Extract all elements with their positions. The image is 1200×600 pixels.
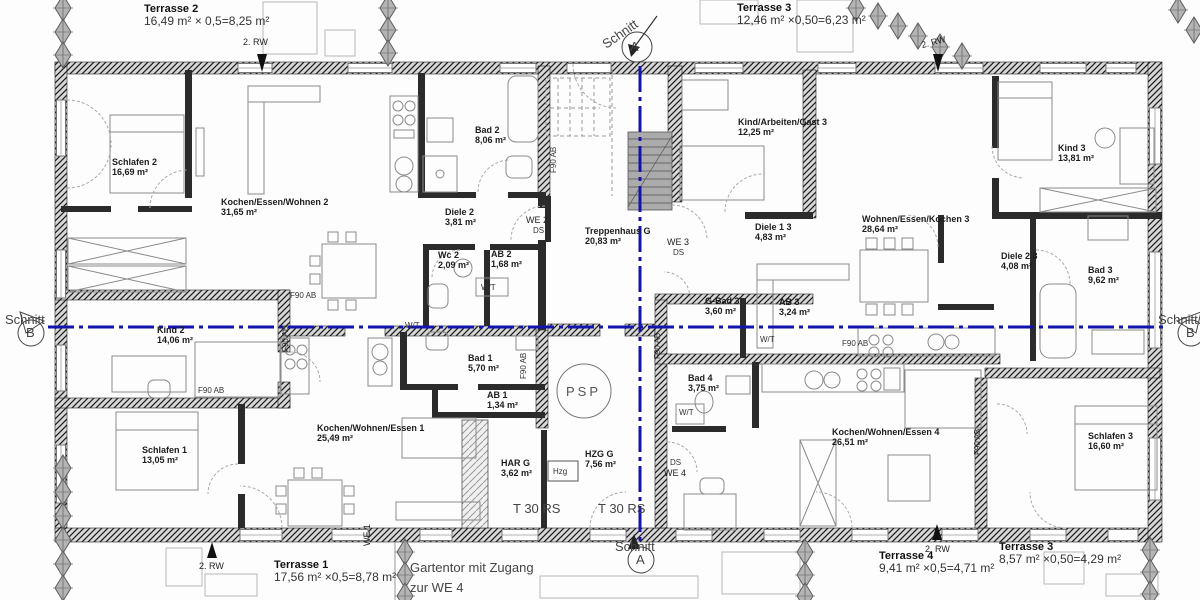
we2-label: WE 2	[526, 215, 548, 225]
terrace-label-1: Terrasse 117,56 m² ×0,5=8,78 m²	[274, 560, 396, 584]
room-label-har-g: HAR G3,62 m²	[501, 458, 532, 478]
room-label-kochen-essen-wohnen-2: Kochen/Essen/Wohnen 231,65 m²	[221, 197, 328, 217]
room-label-bad-2: Bad 28,06 m²	[475, 125, 506, 145]
we4-ds-label: DS	[670, 458, 681, 467]
we4-label: WE 4	[664, 468, 686, 478]
rw-marker-bottom-left: 2. RW	[199, 561, 224, 571]
rw-marker-bottom-right: 2. RW	[925, 544, 950, 554]
rw-marker-top-left: 2. RW	[243, 37, 268, 47]
f90-label-h: F90 AB	[842, 339, 868, 348]
f90-label-j: F90 AB	[973, 429, 982, 455]
f90-label-b: F90 AB	[281, 326, 290, 352]
floor-plan-page: Schlafen 216,69 m² Kochen/Essen/Wohnen 2…	[0, 0, 1200, 600]
wt-label-ab1: W/T	[405, 321, 420, 330]
room-label-schlafen-3: Schlafen 316,60 m²	[1088, 431, 1133, 451]
room-label-bad-4: Bad 43,75 m²	[688, 373, 719, 393]
room-label-hzg-g: HZG G7,56 m²	[585, 449, 616, 469]
t30-label-left: T 30 RS	[513, 502, 560, 516]
room-label-kochen-wohnen-essen-4: Kochen/Wohnen/Essen 426,51 m²	[832, 427, 939, 447]
room-label-diele-2-3: Diele 2 34,08 m²	[1001, 251, 1038, 271]
room-label-treppenhaus-g: Treppenhaus G20,83 m²	[585, 226, 651, 246]
terrace-label-3-top: Terrasse 312,46 m² ×0,50=6,23 m²	[737, 3, 866, 27]
terrace-label-4: Terrasse 49,41 m² ×0,5=4,71 m²	[879, 551, 994, 575]
room-label-ab-1: AB 11,34 m²	[487, 390, 518, 410]
gate-note-line1: Gartentor mit Zugang	[410, 561, 534, 575]
room-label-diele-1-3: Diele 1 34,83 m²	[755, 222, 792, 242]
wt-label-ab2: W/T	[481, 283, 496, 292]
terrace-label-3-bottom: Terrasse 38,57 m² ×0,50=4,29 m²	[999, 542, 1121, 566]
schnitt-a-bottom-label: Schnitt	[615, 540, 655, 554]
terrace-label-2: Terrasse 216,49 m² × 0,5=8,25 m²	[144, 4, 269, 28]
room-label-schlafen-1: Schlafen 113,05 m²	[142, 445, 187, 465]
schnitt-a-bottom-letter: A	[636, 553, 645, 567]
f90-label-f: F90 AB	[549, 147, 558, 173]
room-label-kind-2: Kind 214,06 m²	[157, 325, 193, 345]
f90-label-c: F90 AB	[198, 386, 224, 395]
schnitt-a-top-letter: A	[630, 40, 639, 54]
we3-label: WE 3	[667, 237, 689, 247]
room-label-kind-3: Kind 313,81 m²	[1058, 143, 1094, 163]
f90-label-g: F90 AB	[653, 333, 662, 359]
room-label-bad-3: Bad 39,62 m²	[1088, 265, 1119, 285]
schnitt-b-left-letter: B	[26, 326, 35, 340]
f90-label-e: F90 AB	[519, 353, 528, 379]
room-label-diele-2: Diele 23,81 m²	[445, 207, 476, 227]
room-label-wc-2: Wc 22,09 m²	[438, 250, 469, 270]
gate-note-line2: zur WE 4	[410, 581, 463, 595]
wt-label-ab3: W/T	[760, 335, 775, 344]
we2-ds-label: DS	[533, 226, 544, 235]
room-label-ab-3: AB 33,24 m²	[779, 297, 810, 317]
schnitt-b-left-label: Schnitt	[5, 313, 45, 327]
we3-ds-label: DS	[673, 248, 684, 257]
psp-label: PSP	[566, 384, 601, 399]
room-label-bad-1: Bad 15,70 m²	[468, 353, 499, 373]
f90-label-a: F90 AB	[290, 291, 316, 300]
room-label-wohnen-essen-kochen-3: Wohnen/Essen/Kochen 328,64 m²	[862, 214, 969, 234]
room-label-ab-2: AB 21,68 m²	[491, 249, 522, 269]
room-label-kochen-wohnen-essen-1: Kochen/Wohnen/Essen 125,49 m²	[317, 423, 424, 443]
room-label-g-bad-3: G-Bad 33,60 m²	[705, 296, 740, 316]
schnitt-b-right-letter: B	[1186, 326, 1195, 340]
room-label-kind-arbeiten-gast-3: Kind/Arbeiten/Gast 312,25 m²	[738, 117, 827, 137]
room-label-schlafen-2: Schlafen 216,69 m²	[112, 157, 157, 177]
we1-label: WE 1	[362, 524, 372, 546]
wt-label-bad4: W/T	[679, 408, 694, 417]
staircase	[546, 68, 672, 210]
hzg-label: Hzg	[553, 467, 567, 476]
t30-label-right: T 30 RS	[598, 502, 645, 516]
